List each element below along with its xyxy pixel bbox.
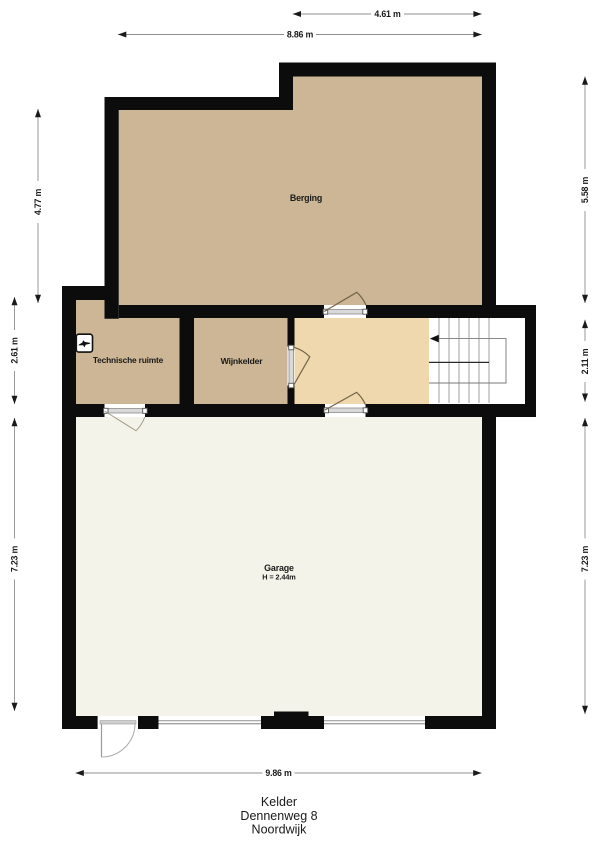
- svg-text:9.86 m: 9.86 m: [265, 768, 292, 778]
- svg-text:7.23 m: 7.23 m: [580, 546, 590, 573]
- svg-text:Noordwijk: Noordwijk: [252, 823, 308, 837]
- svg-text:Kelder: Kelder: [261, 795, 297, 809]
- svg-text:5.58 m: 5.58 m: [580, 177, 590, 204]
- svg-text:7.23 m: 7.23 m: [10, 546, 20, 573]
- svg-text:H = 2.44m: H = 2.44m: [262, 573, 296, 582]
- svg-text:2.61 m: 2.61 m: [10, 337, 20, 364]
- svg-text:2.11 m: 2.11 m: [580, 348, 590, 374]
- svg-text:Technische ruimte: Technische ruimte: [93, 355, 164, 365]
- svg-text:Wijnkelder: Wijnkelder: [221, 356, 264, 366]
- svg-text:4.77 m: 4.77 m: [33, 189, 43, 216]
- svg-text:Garage: Garage: [264, 563, 294, 573]
- svg-text:Berging: Berging: [290, 193, 322, 203]
- svg-text:Dennenweg 8: Dennenweg 8: [240, 809, 317, 823]
- svg-text:4.61 m: 4.61 m: [374, 9, 401, 19]
- svg-text:8.86 m: 8.86 m: [287, 30, 314, 40]
